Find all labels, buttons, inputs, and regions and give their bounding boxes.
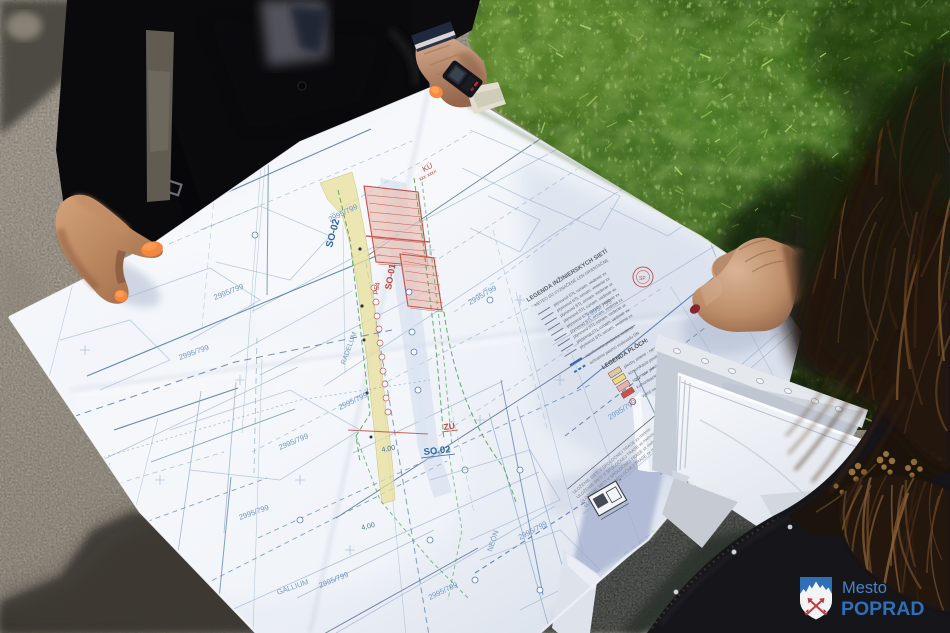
svg-text:SP: SP [639, 276, 646, 282]
svg-text:Mesto: Mesto [842, 579, 887, 597]
svg-text:ZÚ: ZÚ [443, 420, 456, 432]
svg-text:POPRAD: POPRAD [841, 598, 924, 620]
